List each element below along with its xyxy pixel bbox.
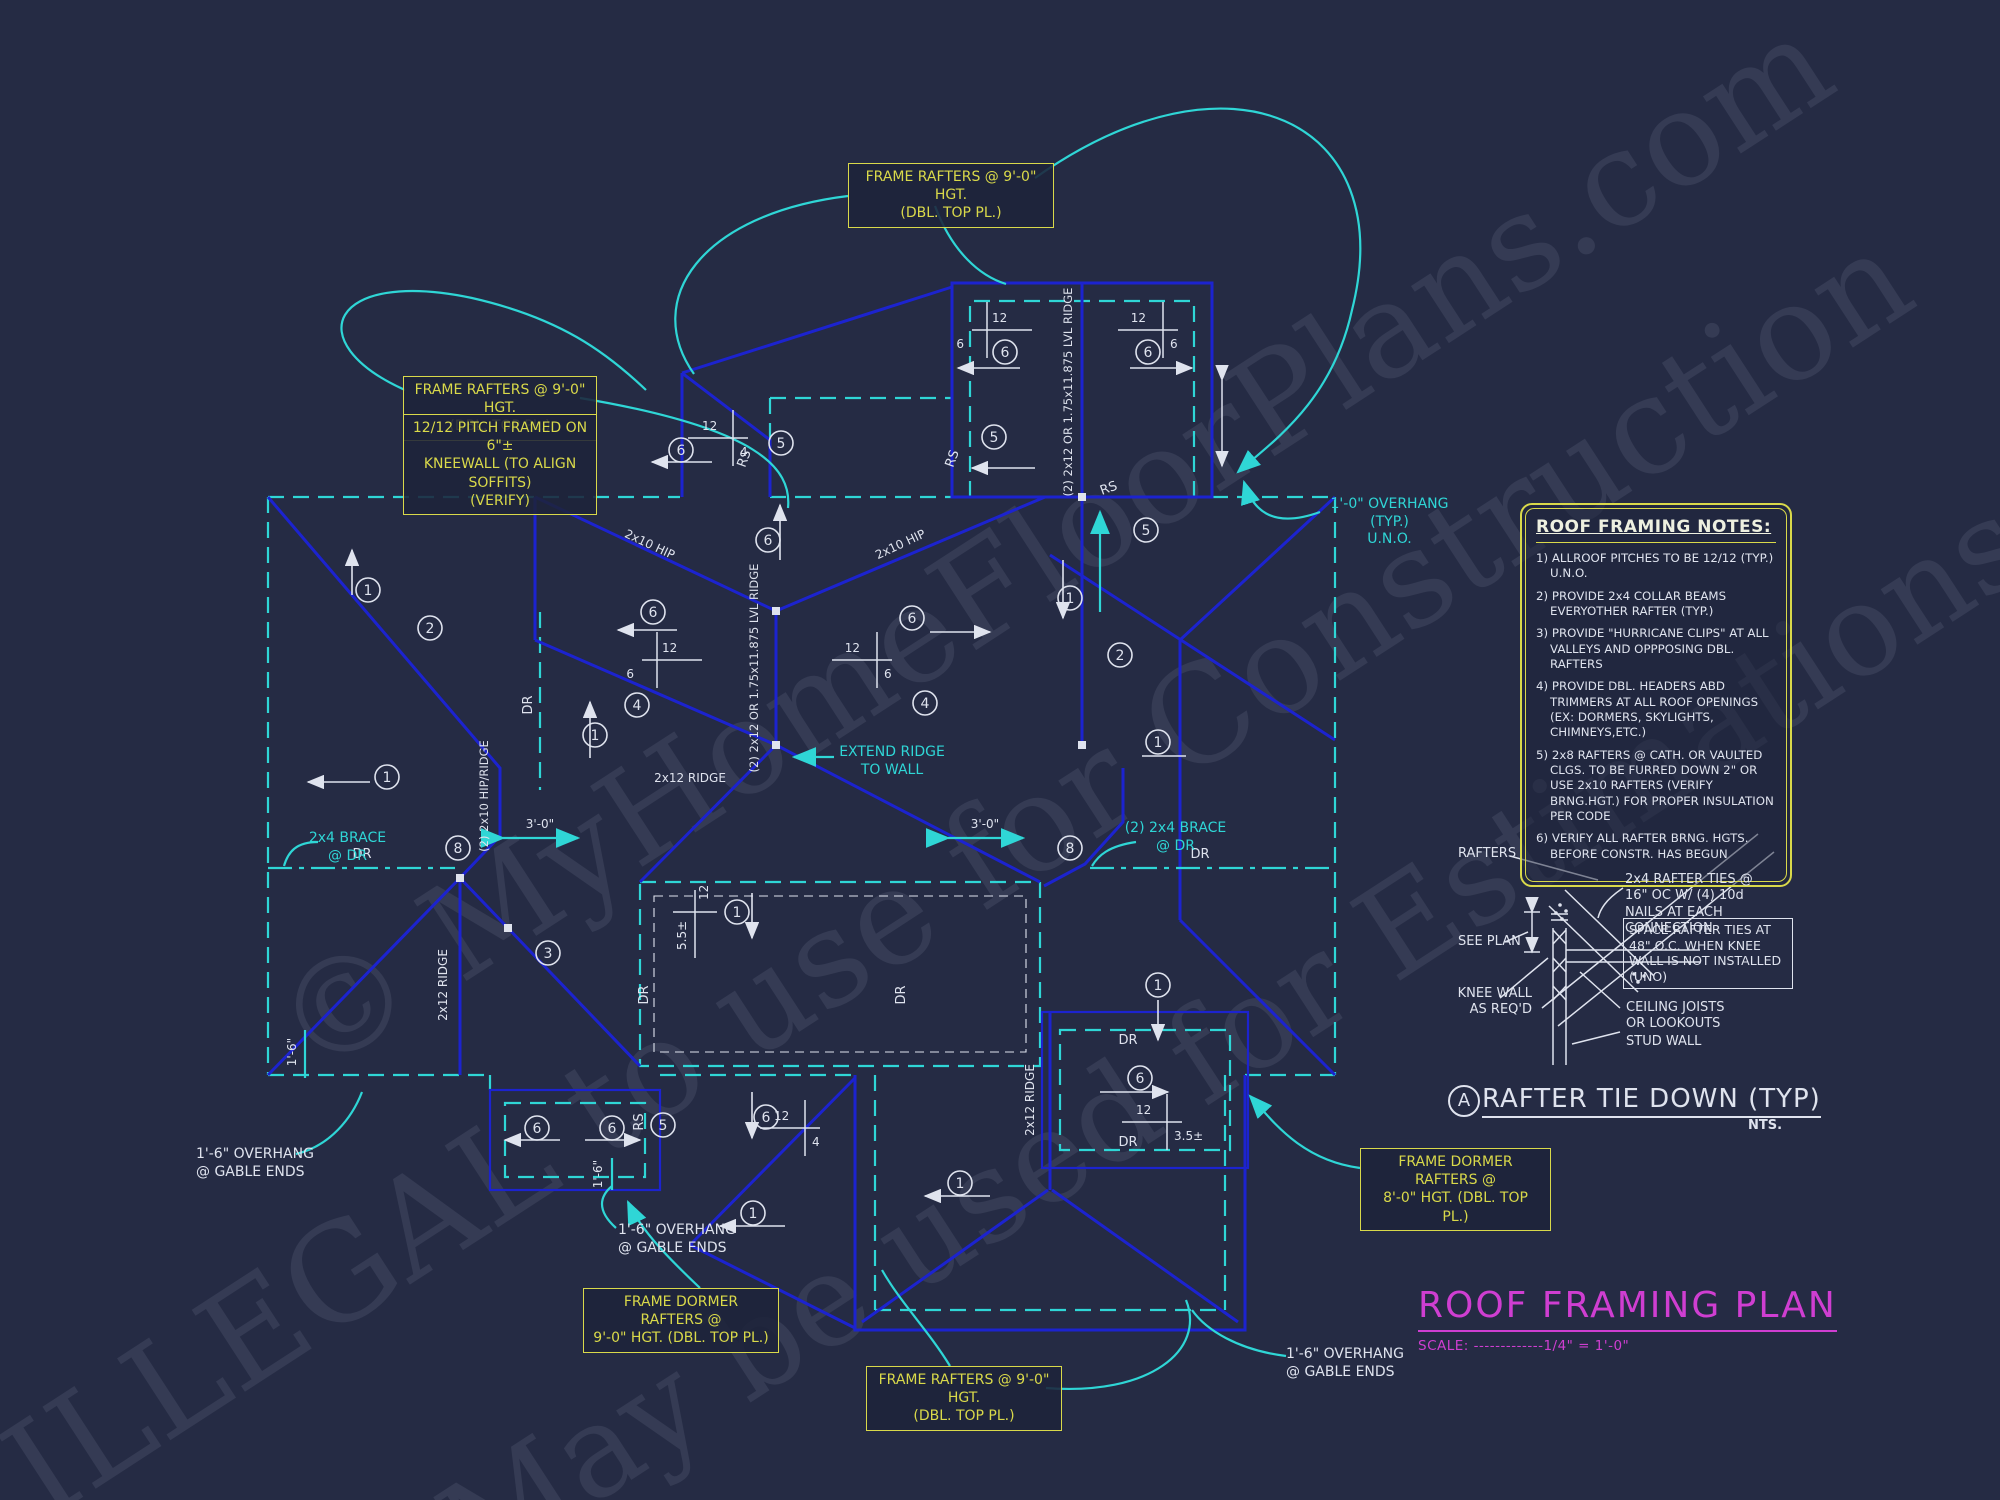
ridge-markers — [456, 493, 1086, 932]
svg-text:8: 8 — [1066, 841, 1075, 857]
svg-text:1: 1 — [749, 1206, 758, 1222]
svg-text:6: 6 — [764, 533, 773, 549]
svg-text:2x12 RIDGE: 2x12 RIDGE — [436, 949, 450, 1021]
note-item: 5) 2x8 RAFTERS @ CATH. OR VAULTED CLGS. … — [1536, 748, 1776, 825]
label-overhang-typ: 1'-0" OVERHANG (TYP.) U.N.O. — [1322, 496, 1457, 549]
svg-text:2x12 RIDGE: 2x12 RIDGE — [1023, 1064, 1037, 1136]
svg-text:4: 4 — [921, 696, 930, 712]
svg-text:1: 1 — [1066, 591, 1075, 607]
svg-text:2x12 RIDGE: 2x12 RIDGE — [654, 771, 726, 785]
svg-text:3'-0": 3'-0" — [526, 817, 554, 831]
svg-text:6: 6 — [626, 667, 634, 681]
svg-text:5: 5 — [990, 430, 999, 446]
detail-title: RAFTER TIE DOWN (TYP) — [1482, 1084, 1821, 1118]
svg-text:1: 1 — [956, 1176, 965, 1192]
notes-inner-border: ROOF FRAMING NOTES: 1) ALLROOF PITCHES T… — [1525, 508, 1787, 882]
svg-text:(2) 2x12 OR 1.75x11.875 LVL RI: (2) 2x12 OR 1.75x11.875 LVL RIDGE — [1061, 288, 1075, 497]
svg-text:DR: DR — [1118, 1033, 1137, 1048]
label-line: CEILING JOISTS — [1626, 1000, 1724, 1016]
label-brace-right: (2) 2x4 BRACE @ DR — [1118, 820, 1233, 855]
callout-line: FRAME DORMER RAFTERS @ — [591, 1293, 771, 1329]
svg-text:5: 5 — [659, 1118, 668, 1134]
callout-frame-rafters-top: FRAME RAFTERS @ 9'-0" HGT. (DBL. TOP PL.… — [848, 163, 1054, 228]
slope-indicators: 126 126 126 126 124 124 123.5± 125.5± — [626, 302, 1203, 1156]
label-brace-left: 2x4 BRACE @ DR — [300, 830, 395, 865]
detail-label-space-note: SPACE RAFTER TIES AT 48" O.C. WHEN KNEE … — [1623, 918, 1793, 989]
svg-text:6: 6 — [762, 1110, 771, 1126]
svg-text:4: 4 — [633, 698, 642, 714]
svg-text:1: 1 — [1154, 978, 1163, 994]
svg-text:RS: RS — [632, 1113, 647, 1130]
svg-text:(2) 2x10 HIP/RIDGE: (2) 2x10 HIP/RIDGE — [477, 740, 491, 852]
label-line: @ DR — [300, 848, 395, 866]
svg-text:12: 12 — [702, 419, 717, 433]
callout-line: FRAME RAFTERS @ 9'-0" HGT. — [856, 168, 1046, 204]
detail-label-ceiling-joists: CEILING JOISTS OR LOOKOUTS — [1626, 1000, 1724, 1033]
detail-scale: NTS. — [1748, 1118, 1782, 1133]
svg-text:4: 4 — [812, 1135, 820, 1149]
roof-framing-plan-sheet: © MyHomeFloorPlans.com ILLEGAL to use fo… — [0, 0, 2000, 1500]
label-line: @ DR — [1118, 838, 1233, 856]
callout-line: 8'-0" HGT. (DBL. TOP PL.) — [1368, 1189, 1543, 1225]
label-extend-ridge: EXTEND RIDGE TO WALL — [836, 744, 948, 779]
svg-text:RS: RS — [943, 448, 963, 469]
label-gable-overhang-right: 1'-6" OVERHANG @ GABLE ENDS — [1286, 1346, 1404, 1381]
detail-label-stud-wall: STUD WALL — [1626, 1034, 1701, 1050]
label-line: AS REQ'D — [1452, 1002, 1532, 1018]
detail-tag: A — [1448, 1085, 1480, 1117]
svg-text:6: 6 — [908, 611, 917, 627]
svg-text:6: 6 — [649, 605, 658, 621]
detail-label-knee-wall: KNEE WALL AS REQ'D — [1452, 986, 1532, 1019]
svg-text:DR: DR — [894, 985, 909, 1004]
svg-text:1: 1 — [591, 728, 600, 744]
label-line: (2) 2x4 BRACE — [1118, 820, 1233, 838]
svg-text:12: 12 — [992, 311, 1007, 325]
svg-text:12: 12 — [1136, 1103, 1151, 1117]
svg-text:12: 12 — [845, 641, 860, 655]
label-line: KNEE WALL — [1452, 986, 1532, 1002]
svg-text:1'-6": 1'-6" — [591, 1160, 605, 1188]
label-line: OR LOOKOUTS — [1626, 1016, 1724, 1032]
svg-text:1: 1 — [1154, 735, 1163, 751]
label-line: TO WALL — [836, 762, 948, 780]
callout-line: (DBL. TOP PL.) — [874, 1407, 1054, 1425]
label-line: 1'-6" OVERHANG — [618, 1222, 736, 1240]
svg-text:2: 2 — [426, 621, 435, 637]
detail-label-see-plan: SEE PLAN — [1458, 934, 1521, 950]
svg-text:RS: RS — [735, 448, 755, 469]
callout-line: KNEEWALL (TO ALIGN SOFFITS) — [411, 455, 589, 491]
callout-frame-rafters-bottom: FRAME RAFTERS @ 9'-0" HGT. (DBL. TOP PL.… — [866, 1366, 1062, 1431]
label-gable-overhang-center: 1'-6" OVERHANG @ GABLE ENDS — [618, 1222, 736, 1257]
svg-text:DR: DR — [521, 695, 536, 714]
svg-text:6: 6 — [677, 443, 686, 459]
svg-text:DR: DR — [637, 985, 652, 1004]
callout-line: (VERIFY) — [411, 492, 589, 510]
svg-text:6: 6 — [956, 337, 964, 351]
leader-curves — [284, 109, 1360, 1389]
note-item: 6) VERIFY ALL RAFTER BRNG. HGTS. BEFORE … — [1536, 831, 1776, 862]
svg-text:8: 8 — [454, 841, 463, 857]
svg-text:12: 12 — [662, 641, 677, 655]
label-line: 1'-6" OVERHANG — [196, 1146, 314, 1164]
svg-text:12: 12 — [1131, 311, 1146, 325]
svg-text:3.5±: 3.5± — [1174, 1129, 1203, 1143]
svg-text:5: 5 — [1142, 523, 1151, 539]
label-line: 1'-0" OVERHANG (TYP.) — [1322, 496, 1457, 531]
note-item: 4) PROVIDE DBL. HEADERS ABD TRIMMERS AT … — [1536, 679, 1776, 740]
callout-line: (DBL. TOP PL.) — [856, 204, 1046, 222]
svg-text:6: 6 — [1136, 1071, 1145, 1087]
callout-line: FRAME DORMER RAFTERS @ — [1368, 1153, 1543, 1189]
detail-label-rafters: RAFTERS — [1458, 846, 1516, 862]
sheet-scale: SCALE: -------------1/4" = 1'-0" — [1418, 1338, 1629, 1354]
svg-text:1: 1 — [364, 583, 373, 599]
svg-text:12: 12 — [697, 885, 711, 900]
sheet-title: ROOF FRAMING PLAN — [1418, 1285, 1837, 1332]
svg-text:5.5±: 5.5± — [675, 921, 689, 950]
svg-text:1: 1 — [383, 770, 392, 786]
note-item: 1) ALLROOF PITCHES TO BE 12/12 (TYP.) U.… — [1536, 551, 1776, 582]
svg-text:(2) 2x12 OR 1.75x11.875 LVL RI: (2) 2x12 OR 1.75x11.875 LVL RIDGE — [747, 564, 761, 773]
note-item: 2) PROVIDE 2x4 COLLAR BEAMS EVERYOTHER R… — [1536, 589, 1776, 620]
label-gable-overhang-left: 1'-6" OVERHANG @ GABLE ENDS — [196, 1146, 314, 1181]
note-item: 3) PROVIDE "HURRICANE CLIPS" AT ALL VALL… — [1536, 626, 1776, 672]
svg-text:6: 6 — [1170, 337, 1178, 351]
svg-text:1'-6": 1'-6" — [285, 1038, 299, 1066]
svg-text:6: 6 — [1144, 345, 1153, 361]
notes-title: ROOF FRAMING NOTES: — [1536, 517, 1776, 543]
label-line: @ GABLE ENDS — [196, 1164, 314, 1182]
callout-dormer-rafters-8: FRAME DORMER RAFTERS @ 8'-0" HGT. (DBL. … — [1360, 1148, 1551, 1231]
svg-text:5: 5 — [777, 436, 786, 452]
callout-pitch-kneewall: 12/12 PITCH FRAMED ON 6"± KNEEWALL (TO A… — [403, 414, 597, 515]
svg-text:2: 2 — [1116, 648, 1125, 664]
svg-text:6: 6 — [884, 667, 892, 681]
svg-text:1: 1 — [733, 905, 742, 921]
svg-text:6: 6 — [608, 1121, 617, 1137]
label-line: U.N.O. — [1322, 531, 1457, 549]
label-line: @ GABLE ENDS — [1286, 1364, 1404, 1382]
label-line: 2x4 BRACE — [300, 830, 395, 848]
svg-text:3'-0": 3'-0" — [971, 817, 999, 831]
label-line: EXTEND RIDGE — [836, 744, 948, 762]
callout-line: FRAME RAFTERS @ 9'-0" HGT. — [411, 381, 589, 417]
label-line: 1'-6" OVERHANG — [1286, 1346, 1404, 1364]
svg-text:6: 6 — [533, 1121, 542, 1137]
svg-text:3: 3 — [544, 946, 553, 962]
svg-text:DR: DR — [1118, 1135, 1137, 1150]
callout-dormer-rafters-9: FRAME DORMER RAFTERS @ 9'-0" HGT. (DBL. … — [583, 1288, 779, 1353]
callout-line: 9'-0" HGT. (DBL. TOP PL.) — [591, 1329, 771, 1347]
roof-framing-notes: ROOF FRAMING NOTES: 1) ALLROOF PITCHES T… — [1520, 503, 1792, 887]
callout-line: FRAME RAFTERS @ 9'-0" HGT. — [874, 1371, 1054, 1407]
label-line: @ GABLE ENDS — [618, 1240, 736, 1258]
svg-text:6: 6 — [1001, 345, 1010, 361]
callout-line: 12/12 PITCH FRAMED ON 6"± — [411, 419, 589, 455]
svg-text:2x10 HIP: 2x10 HIP — [622, 527, 677, 562]
